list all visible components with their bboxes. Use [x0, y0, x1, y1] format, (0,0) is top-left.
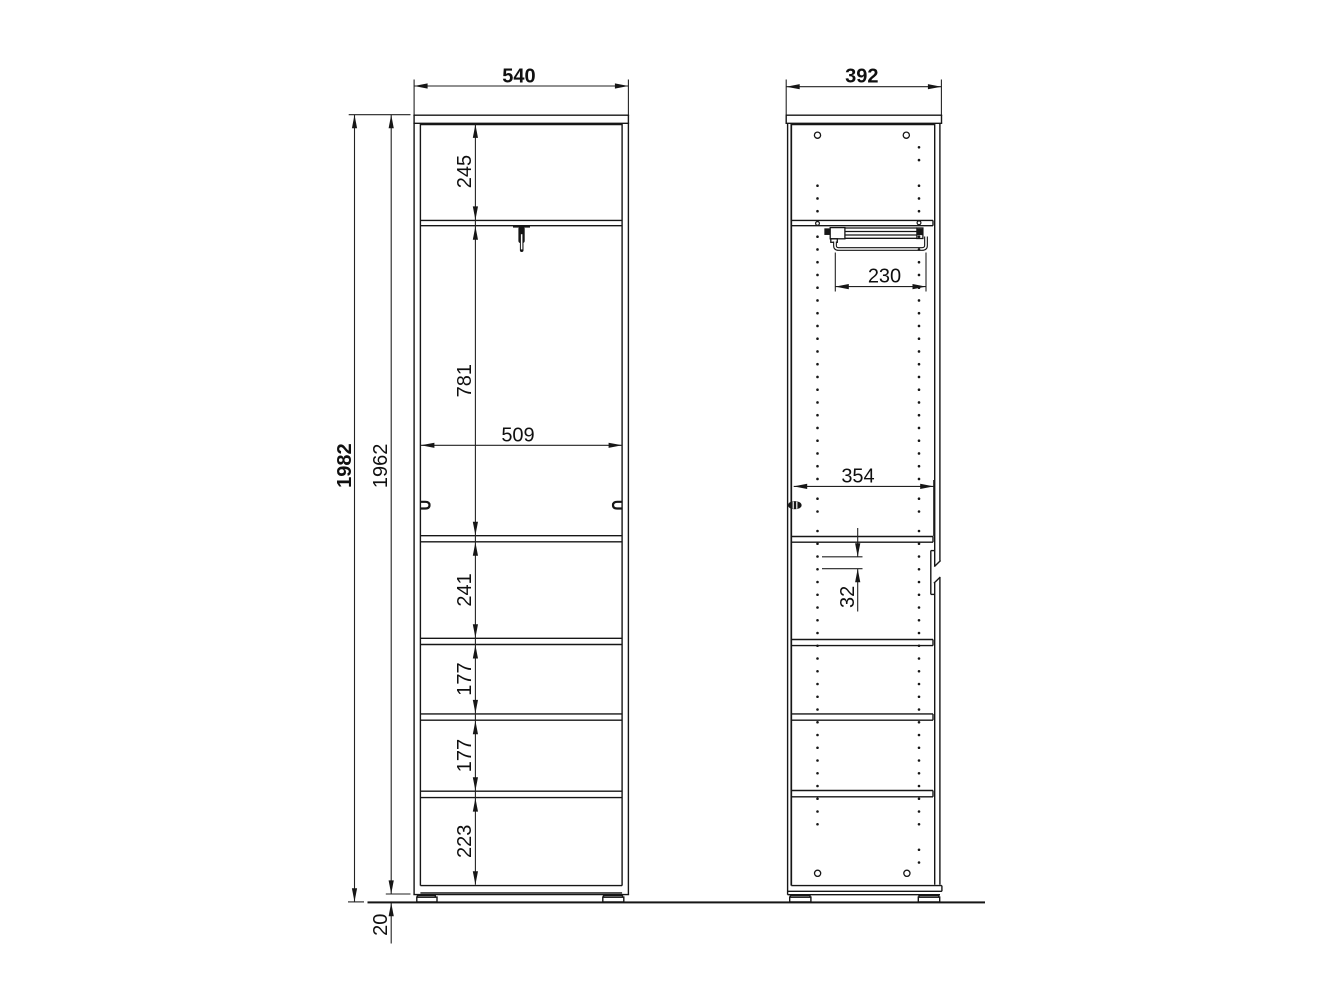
svg-text:241: 241	[454, 573, 476, 606]
svg-text:245: 245	[454, 155, 476, 188]
svg-text:354: 354	[841, 466, 874, 488]
svg-text:540: 540	[502, 65, 535, 87]
svg-text:230: 230	[868, 266, 901, 288]
svg-text:177: 177	[454, 739, 476, 772]
svg-text:20: 20	[370, 914, 392, 936]
svg-text:1982: 1982	[334, 443, 356, 488]
svg-text:392: 392	[845, 66, 878, 88]
svg-text:1962: 1962	[370, 444, 392, 489]
svg-text:781: 781	[454, 364, 476, 397]
svg-text:32: 32	[837, 586, 859, 608]
svg-text:177: 177	[454, 662, 476, 695]
svg-text:509: 509	[501, 425, 534, 447]
svg-text:223: 223	[454, 825, 476, 858]
